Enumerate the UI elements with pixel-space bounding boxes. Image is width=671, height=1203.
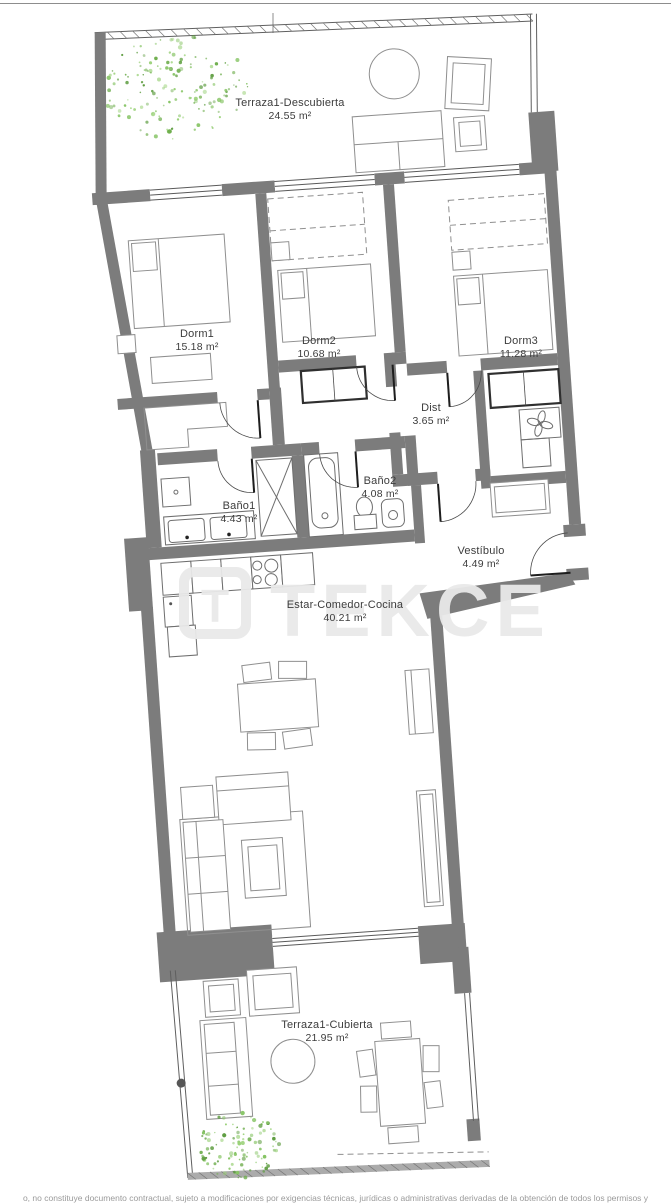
terrace-side-table-icon (453, 116, 486, 152)
room-label-bano1: Baño1 4.43 m² (221, 500, 258, 526)
roof-overhang-line (338, 1144, 489, 1163)
bidet-icon (381, 498, 405, 527)
ac-unit-icon (519, 407, 563, 468)
room-name: Baño2 (362, 475, 399, 488)
wardrobe-dorm3-icon (448, 194, 549, 271)
toilet-icon (353, 496, 377, 529)
room-area: 10.68 m² (297, 348, 340, 361)
room-name: Dorm3 (500, 335, 542, 348)
room-name: Terraza1-Descubierta (235, 97, 344, 110)
room-label-vestibulo: Vestíbulo 4.49 m² (457, 545, 504, 571)
plants-icon (101, 31, 251, 144)
room-label-terraza1-cubierta: Terraza1-Cubierta 21.95 m² (281, 1019, 372, 1045)
room-label-estar-comedor-cocina: Estar-Comedor-Cocina 40.21 m² (287, 599, 403, 625)
room-label-terraza1-descubierta: Terraza1-Descubierta 24.55 m² (235, 97, 344, 123)
room-area: 4.43 m² (221, 513, 258, 526)
room-area: 24.55 m² (235, 110, 344, 123)
furniture (108, 180, 596, 938)
fan-icon (526, 409, 555, 438)
room-area: 40.21 m² (287, 612, 403, 625)
terrace-square-table-icon (445, 57, 492, 111)
bed-dorm2-icon (278, 264, 376, 342)
room-area: 11.28 m² (500, 348, 542, 361)
room-name: Vestíbulo (457, 545, 504, 558)
washing-machine-icon (161, 477, 191, 507)
window-living (272, 926, 418, 948)
room-name: Baño1 (221, 500, 258, 513)
room-label-dorm2: Dorm2 10.68 m² (297, 335, 340, 361)
coffee-table-icon (241, 838, 286, 899)
page-frame (0, 4, 671, 34)
footer-disclaimer: o, no constituye documento contractual, … (0, 1193, 671, 1203)
window-dorm1 (150, 184, 223, 201)
floorplan-page: { "watermark": { "text": "TEKCE", "logo_… (0, 0, 671, 1200)
sideboard-icon (405, 669, 433, 735)
shower-icon (256, 458, 297, 536)
room-area: 3.65 m² (413, 415, 450, 428)
room-name: Dorm2 (297, 335, 340, 348)
terrace-armchair-icon (203, 979, 240, 1017)
room-area: 4.08 m² (362, 488, 399, 501)
room-label-bano2: Baño2 4.08 m² (362, 475, 399, 501)
terrace-sofa-icon (352, 111, 445, 173)
window-dorm2 (274, 173, 375, 192)
tv-cabinet-icon (416, 790, 443, 907)
room-name: Dist (413, 402, 450, 415)
closet-dorm1-icon (144, 402, 229, 450)
room-area: 21.95 m² (281, 1032, 372, 1045)
terrace-round-table-icon (368, 47, 421, 100)
terrace-loveseat-icon (246, 967, 299, 1016)
room-label-dorm3: Dorm3 11.28 m² (500, 335, 542, 361)
cabinet-vestibulo-icon (490, 479, 550, 517)
wardrobe-dorm2-icon (268, 192, 367, 260)
tekce-logo-letter: T (201, 580, 229, 632)
room-name: Terraza1-Cubierta (281, 1019, 372, 1032)
terrace-sofa2-icon (200, 1017, 253, 1119)
room-area: 4.49 m² (457, 558, 504, 571)
room-label-dist: Dist 3.65 m² (413, 402, 450, 428)
room-name: Estar-Comedor-Cocina (287, 599, 403, 612)
terrace-bottom (169, 949, 490, 1188)
room-label-dorm1: Dorm1 15.18 m² (175, 328, 218, 354)
room-name: Dorm1 (175, 328, 218, 341)
bathtub-icon (304, 453, 344, 537)
dining-table-icon (236, 659, 320, 752)
room-area: 15.18 m² (175, 341, 218, 354)
